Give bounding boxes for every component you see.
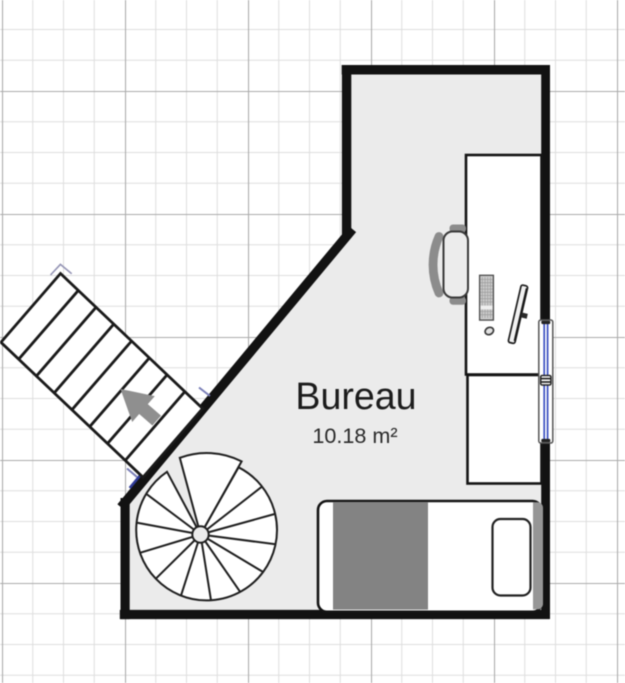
svg-text:Bureau: Bureau: [295, 375, 416, 417]
svg-text:10.18 m²: 10.18 m²: [312, 423, 397, 448]
